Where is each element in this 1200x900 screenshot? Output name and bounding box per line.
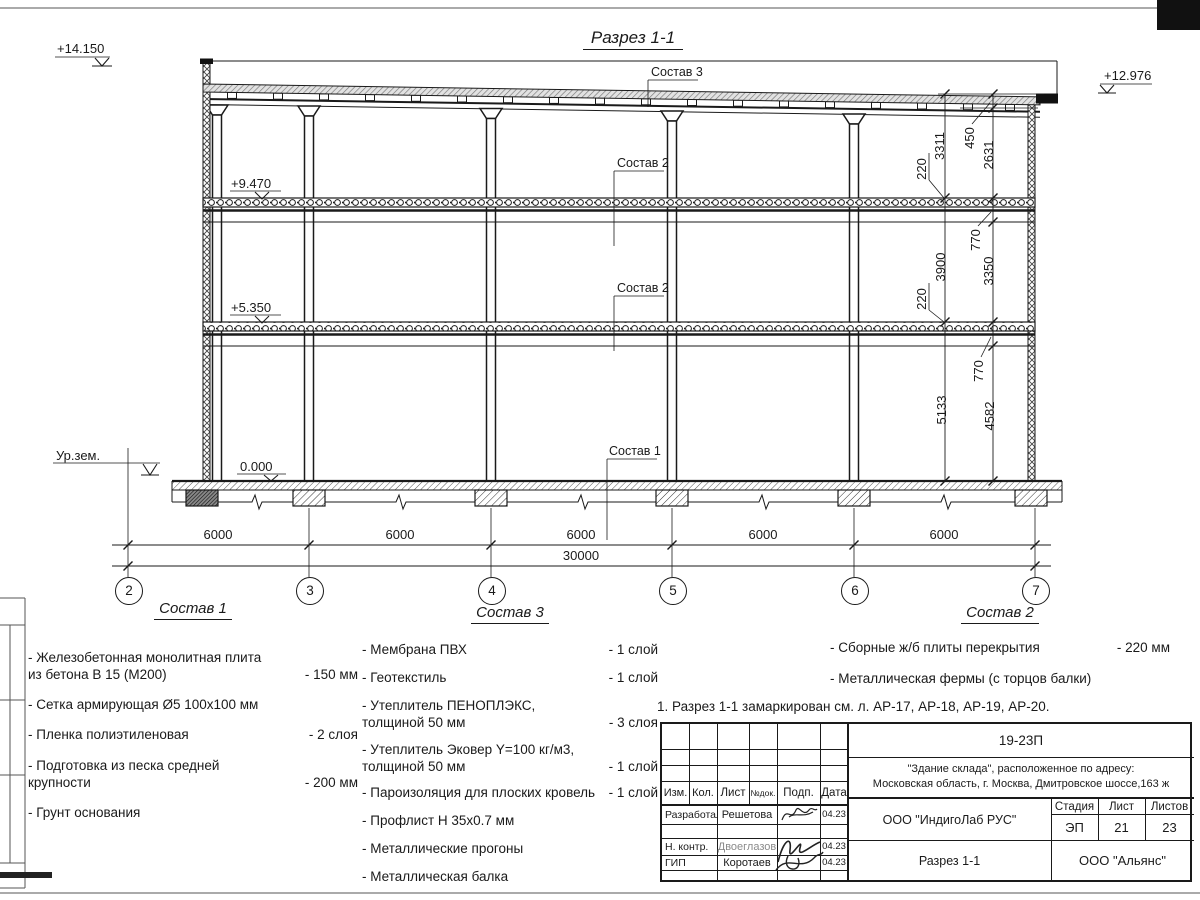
project-name: "Здание склада", расположенное по адресу… (852, 757, 1190, 797)
axis-bubble-6: 6 (841, 577, 869, 605)
drawing-view-title: Разрез 1-1 (548, 28, 718, 48)
dim-30000: 30000 (546, 548, 616, 563)
org-name: ООО "ИндигоЛаб РУС" (848, 799, 1051, 840)
elevation-roof-right: +12.976 (1104, 68, 1151, 83)
dim-6000-2: 6000 (370, 527, 430, 542)
dim-5133: 5133 (933, 375, 949, 445)
sheet-label: Лист (1098, 799, 1145, 814)
col-kol: Кол. (689, 781, 717, 804)
legend-item: - Металлическая фермы (с торцов балки) (830, 670, 1170, 687)
axis-bubble-4: 4 (478, 577, 506, 605)
columns (206, 105, 865, 481)
footings (186, 490, 1047, 506)
sheet-title: Разрез 1-1 (848, 841, 1051, 880)
ground-level-label: Ур.зем. (56, 448, 100, 463)
callout-leaders (607, 80, 698, 540)
legend-item: - Металлическая балка (362, 868, 658, 885)
stage-label: Стадия (1051, 799, 1098, 814)
legend-item: - Геотекстиль- 1 слой (362, 669, 658, 686)
elevation-roof-left: +14.150 (57, 41, 104, 56)
floor-slabs (203, 198, 1035, 346)
stage-value: ЭП (1051, 814, 1098, 840)
legend-item: - Утеплитель Эковер Y=100 кг/м3, толщино… (362, 741, 658, 775)
legend-item: - Сетка армирующая Ø5 100x100 мм (28, 696, 358, 713)
row-name: Решетова (717, 805, 777, 824)
col-izm: Изм. (662, 781, 689, 804)
legend-item: - Пленка полиэтиленовая- 2 слоя (28, 726, 358, 743)
col-ndok: №док. (749, 781, 777, 804)
legend-item: - Сборные ж/б плиты перекрытия- 220 мм (830, 639, 1170, 656)
callout-roof: Состав 3 (651, 65, 703, 79)
dim-450: 450 (961, 103, 977, 173)
legend-sostav3: Состав 3 - Мембрана ПВХ- 1 слой - Геотек… (362, 604, 658, 898)
wall-left (203, 61, 210, 481)
row-role: Разработал (662, 805, 717, 824)
dim-6000-1: 6000 (188, 527, 248, 542)
row-name: Двоеглазов (717, 838, 777, 855)
legend-sostav1: Состав 1 - Железобетонная монолитная пли… (28, 600, 358, 834)
dim-3311: 3311 (931, 111, 947, 181)
dim-6000-4: 6000 (733, 527, 793, 542)
legend-sostav2: Состав 2 - Сборные ж/б плиты перекрытия-… (830, 604, 1170, 700)
col-list: Лист (717, 781, 749, 804)
drawing-sheet: Разрез 1-1 +14.150 +12.976 +9.470 +5.350… (0, 0, 1200, 900)
margin-mark (0, 872, 52, 878)
wall-right (1028, 99, 1035, 481)
sheets-label: Листов (1145, 799, 1194, 814)
dim-2631: 2631 (980, 120, 996, 190)
drawing-note: 1. Разрез 1-1 замаркирован см. л. АР-17,… (657, 699, 1049, 714)
legend-item: - Утеплитель ПЕНОПЛЭКС, толщиной 50 мм- … (362, 697, 658, 731)
elevation-slab-upper: +9.470 (231, 176, 271, 191)
dim-220-upper: 220 (913, 134, 929, 204)
axis-bubble-5: 5 (659, 577, 687, 605)
dim-3350: 3350 (980, 236, 996, 306)
legend-item: - Мембрана ПВХ- 1 слой (362, 641, 658, 658)
dim-3900: 3900 (932, 232, 948, 302)
legend-sostav2-title: Состав 2 (830, 604, 1170, 621)
row-date: 04.23 (820, 805, 848, 824)
legend-item: - Профлист Н 35x0.7 мм (362, 812, 658, 829)
row-role: ГИП (662, 855, 717, 870)
callout-slab-lower: Состав 2 (617, 281, 669, 295)
sheets-value: 23 (1145, 814, 1194, 840)
col-data: Дата (820, 781, 848, 804)
legend-sostav3-title: Состав 3 (362, 604, 658, 621)
dim-4582: 4582 (981, 381, 997, 451)
legend-item: - Грунт основания (28, 804, 358, 821)
axis-bubble-7: 7 (1022, 577, 1050, 605)
row-name: Коротаев (717, 855, 777, 870)
elevation-slab-lower: +5.350 (231, 300, 271, 315)
legend-item: - Пароизоляция для плоских кровель- 1 сл… (362, 784, 658, 801)
corner-mark (1157, 0, 1200, 30)
callout-slab-upper: Состав 2 (617, 156, 669, 170)
col-podp: Подп. (777, 781, 820, 804)
dim-6000-5: 6000 (914, 527, 974, 542)
callout-floor: Состав 1 (609, 444, 661, 458)
legend-item: - Металлические прогоны (362, 840, 658, 857)
dim-6000-3: 6000 (551, 527, 611, 542)
elevation-floor: 0.000 (240, 459, 273, 474)
doc-number: 19-23П (848, 724, 1194, 757)
sheet-value: 21 (1098, 814, 1145, 840)
dim-220-lower: 220 (913, 264, 929, 334)
row-role: Н. контр. (662, 838, 717, 855)
legend-sostav1-title: Состав 1 (28, 600, 358, 617)
title-block: Изм. Кол. Лист №док. Подп. Дата Разработ… (660, 722, 1192, 882)
legend-item: - Железобетонная монолитная плита из бет… (28, 649, 358, 683)
org2-name: ООО "Альянс" (1051, 841, 1194, 880)
legend-item: - Подготовка из песка средней крупности-… (28, 757, 358, 791)
